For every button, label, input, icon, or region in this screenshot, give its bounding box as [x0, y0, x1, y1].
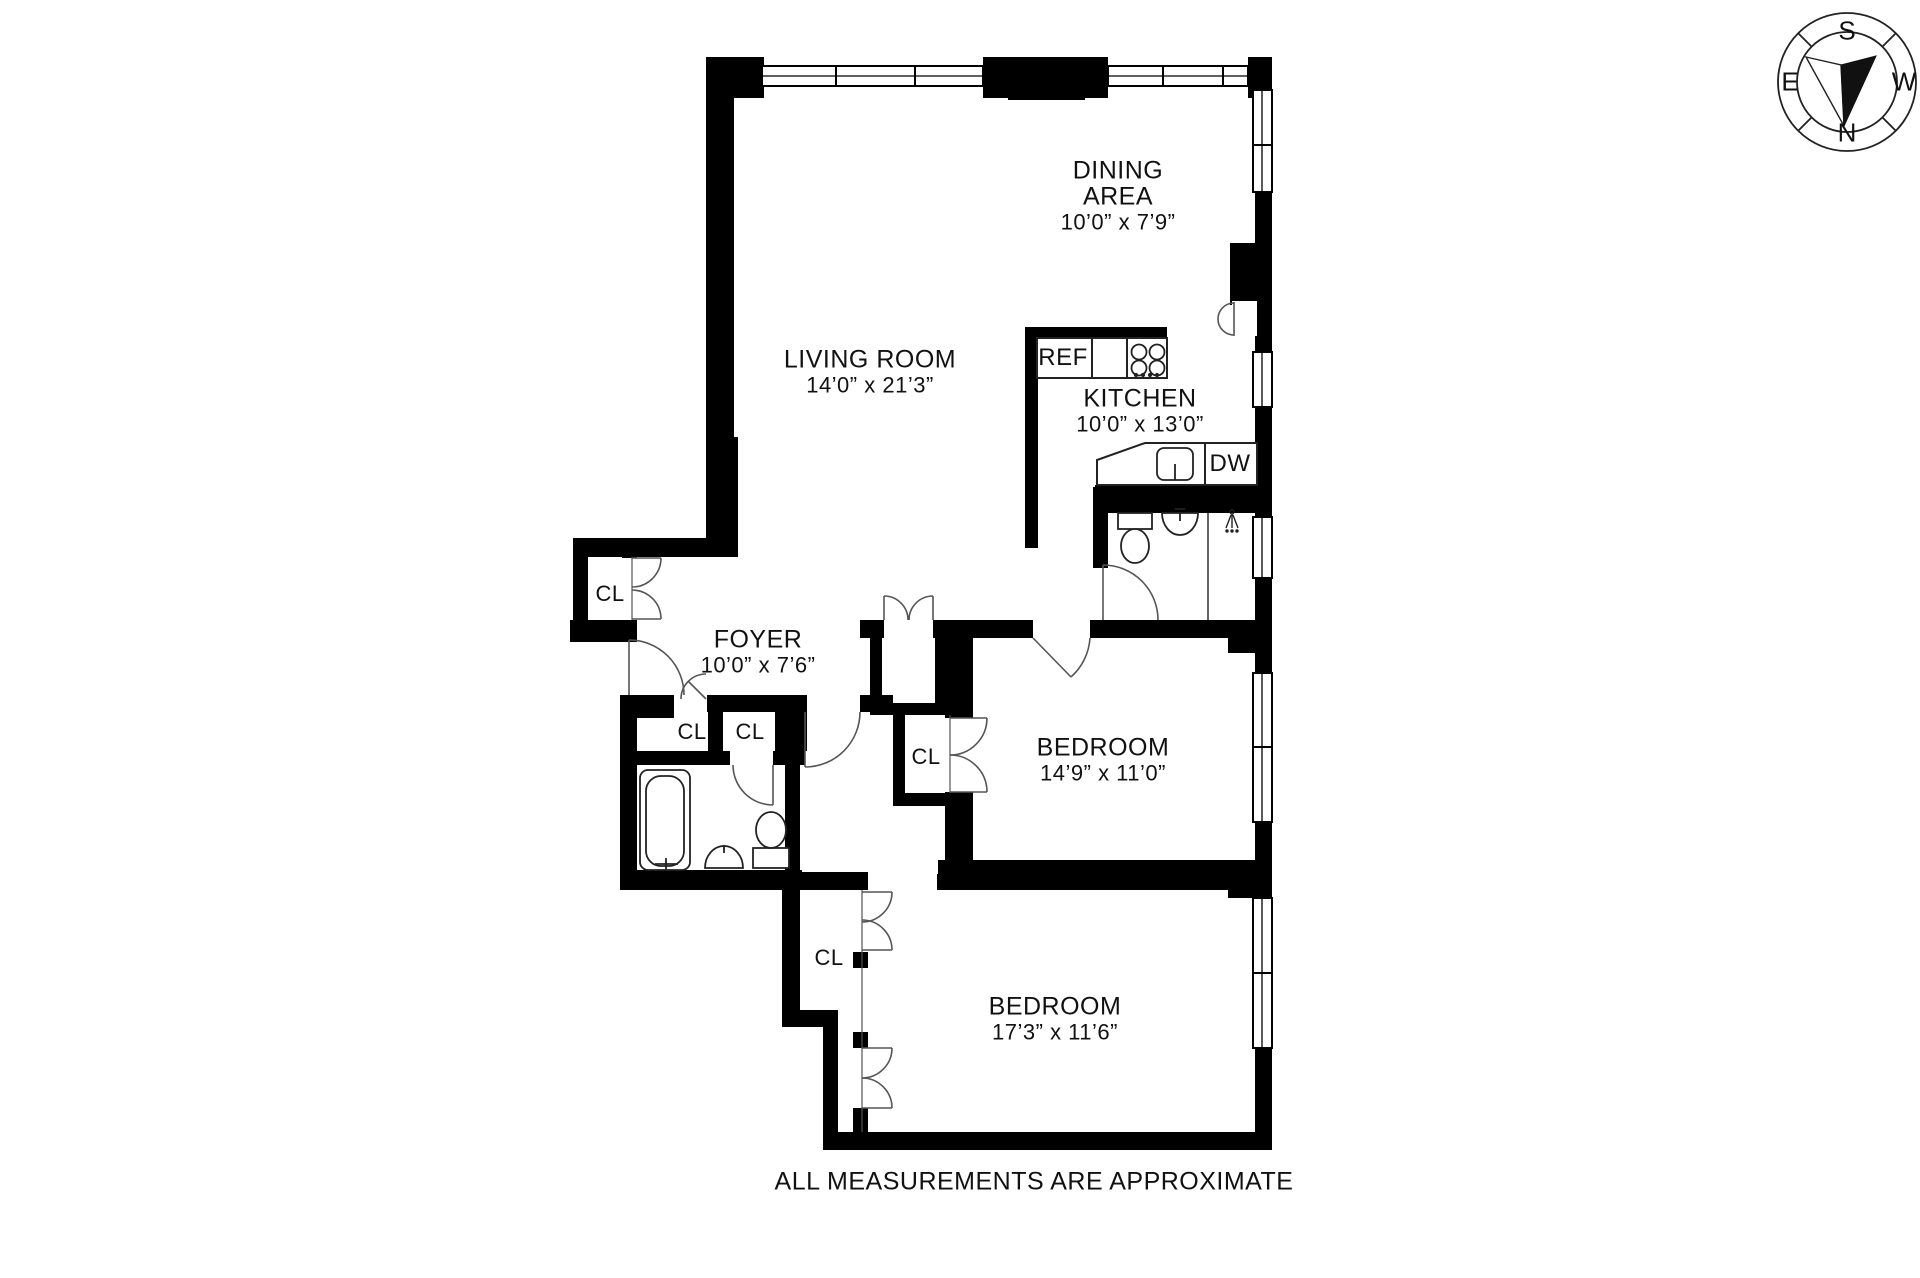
- window-bath-right: [1253, 517, 1272, 578]
- room-label-kitchen: KITCHEN 10’0” x 13’0”: [1076, 386, 1204, 437]
- floor-plan-drawing: [0, 0, 1920, 1278]
- compass-south-label: S: [1838, 16, 1855, 47]
- kitchen-sink-icon: [1157, 448, 1193, 480]
- room-name: DINING AREA: [1053, 158, 1183, 210]
- windows-layer: [762, 66, 1272, 1048]
- foyer-hall-door: [805, 712, 860, 767]
- compass-north-label: N: [1838, 118, 1857, 149]
- bathroom2-sink-icon: [1162, 509, 1198, 535]
- window-top-left: [762, 66, 983, 86]
- bedroom1-closet-double-door: [950, 715, 987, 793]
- bathroom2-door: [1103, 565, 1158, 620]
- shower-head-icon: [1226, 510, 1238, 532]
- compass-west-label: W: [1892, 67, 1917, 98]
- dishwasher-label: DW: [1210, 450, 1251, 478]
- room-name: KITCHEN: [1076, 386, 1204, 412]
- bathroom2-toilet-icon: [1118, 513, 1152, 563]
- room-dims: 17’3” x 11’6”: [989, 1020, 1122, 1045]
- floor-plan-page: DINING AREA 10’0” x 7’9” LIVING ROOM 14’…: [0, 0, 1920, 1278]
- room-label-dining-area: DINING AREA 10’0” x 7’9”: [1053, 158, 1183, 235]
- hall-closet-double-door: [884, 596, 933, 620]
- service-double-door: [1218, 302, 1234, 336]
- room-dims: 10’0” x 7’6”: [701, 653, 816, 678]
- window-top-right: [1108, 66, 1248, 86]
- entry-door: [629, 640, 684, 695]
- bathroom1-sink-icon: [705, 845, 743, 868]
- closet-label: CL: [911, 744, 940, 770]
- room-name: BEDROOM: [1037, 735, 1170, 761]
- foyer-closet-double-door: [632, 557, 661, 620]
- bathtub-icon: [640, 770, 690, 870]
- window-dining-right: [1253, 90, 1272, 192]
- window-bedroom1-right: [1253, 673, 1272, 822]
- compass-east-label: E: [1781, 67, 1798, 98]
- closet-label: CL: [735, 719, 764, 745]
- room-label-bedroom-2: BEDROOM 17’3” x 11’6”: [989, 994, 1122, 1045]
- bedroom1-door: [1033, 638, 1090, 677]
- room-name: FOYER: [701, 627, 816, 653]
- room-name: LIVING ROOM: [784, 347, 956, 373]
- bathroom1-door: [733, 765, 773, 805]
- window-bedroom2-right: [1253, 898, 1272, 1048]
- window-kitchen-right: [1253, 352, 1272, 407]
- room-label-foyer: FOYER 10’0” x 7’6”: [701, 627, 816, 678]
- room-dims: 10’0” x 7’9”: [1053, 210, 1183, 235]
- closet-label: CL: [814, 945, 843, 971]
- refrigerator-label: REF: [1038, 344, 1088, 372]
- room-dims: 14’9” x 11’0”: [1037, 761, 1170, 786]
- measurements-disclaimer: ALL MEASUREMENTS ARE APPROXIMATE: [775, 1168, 1294, 1197]
- room-label-bedroom-1: BEDROOM 14’9” x 11’0”: [1037, 735, 1170, 786]
- room-dims: 14’0” x 21’3”: [784, 373, 956, 398]
- bedroom2-closet-bifold-doors: [862, 890, 892, 1132]
- closet-a-door: [681, 674, 706, 699]
- closet-label: CL: [677, 719, 706, 745]
- room-dims: 10’0” x 13’0”: [1076, 412, 1204, 437]
- room-name: BEDROOM: [989, 994, 1122, 1020]
- compass-needle: [1806, 56, 1876, 126]
- room-label-living-room: LIVING ROOM 14’0” x 21’3”: [784, 347, 956, 398]
- closet-label: CL: [595, 581, 624, 607]
- bathroom1-toilet-icon: [753, 812, 789, 868]
